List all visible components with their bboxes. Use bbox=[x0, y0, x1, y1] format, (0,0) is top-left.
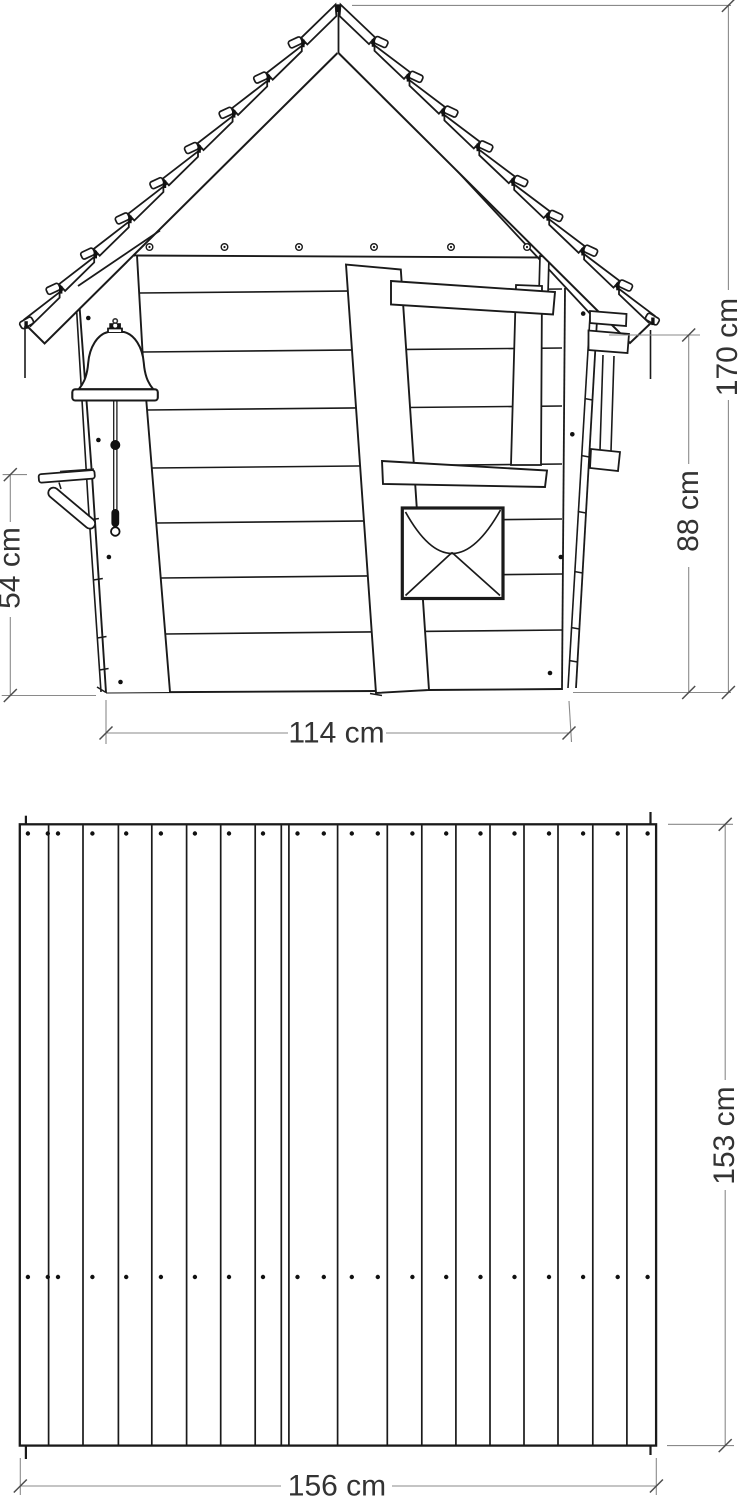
svg-text:153 cm: 153 cm bbox=[708, 1086, 740, 1184]
svg-text:170 cm: 170 cm bbox=[711, 298, 740, 396]
svg-text:54 cm: 54 cm bbox=[0, 527, 27, 609]
svg-text:114 cm: 114 cm bbox=[288, 717, 384, 750]
svg-text:88 cm: 88 cm bbox=[672, 470, 705, 552]
svg-text:156 cm: 156 cm bbox=[288, 1470, 386, 1500]
